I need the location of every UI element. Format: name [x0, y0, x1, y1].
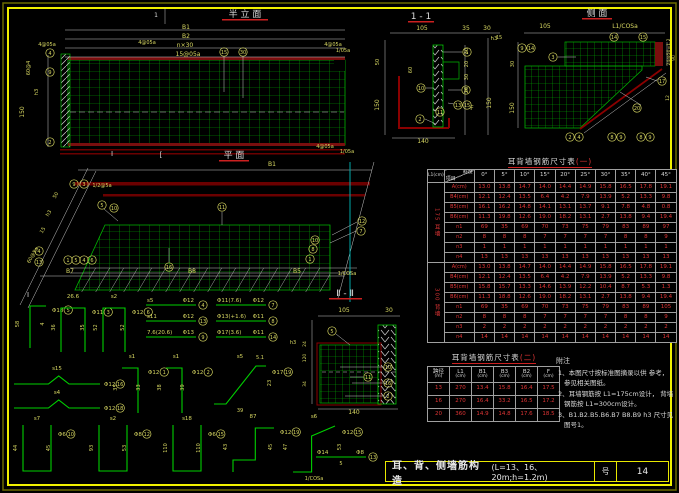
table-cell: B5(cm): [444, 203, 474, 213]
table-cell: 5.2: [616, 273, 636, 283]
rebar-id: 19: [285, 370, 291, 376]
dim-label: L1/COSa: [612, 23, 638, 30]
callout-number: 1: [465, 50, 468, 56]
callout-number: 15: [640, 35, 646, 41]
callout-number: 5: [100, 203, 103, 209]
table-cell: 19.8: [494, 213, 514, 223]
rebar-id: 19: [293, 430, 299, 436]
table-cell: 12.2: [575, 283, 595, 293]
dim-label: 1: [154, 12, 158, 19]
rebar-spec: Φ11: [253, 314, 264, 320]
rebar-spec: Φ12: [192, 370, 203, 376]
rebar-dim: 23: [267, 380, 273, 386]
table-cell: 18.2: [555, 213, 575, 223]
dim-label: 105: [416, 25, 428, 32]
table-cell: 13: [595, 253, 615, 263]
rebar-shape: s11Φ1213: [146, 314, 207, 325]
table-cell: 19.0: [535, 293, 555, 303]
rebar-id: 4: [201, 303, 204, 309]
dim-label: Ⅰ: [27, 291, 29, 299]
sheet-title: 耳、背、侧墙筋构造: [392, 457, 482, 487]
rebar-shape: 7.6(20.6)Φ139: [146, 330, 207, 341]
rebar-name: s15: [52, 366, 62, 372]
table-cell: 8: [494, 313, 514, 323]
rebar-dim: 35: [113, 384, 119, 390]
callout-number: 4: [48, 51, 51, 57]
table-cell: 13.1: [575, 293, 595, 303]
rebar-shape: Φ13(+1.6)Φ118: [216, 314, 277, 325]
table-cell: 8: [636, 313, 656, 323]
table-cell: 13: [656, 253, 676, 263]
table-cell: 14: [595, 333, 615, 343]
rebar-spec: Φ12: [280, 430, 291, 436]
table-cell: 69: [515, 303, 535, 313]
table-cell: 14: [494, 333, 514, 343]
rebar-spec: Φ12: [104, 406, 115, 412]
table-cell: 13: [494, 253, 514, 263]
table-cell: 75: [575, 223, 595, 233]
table-cell: 14: [555, 333, 575, 343]
dim-label: 60: [408, 67, 414, 73]
rebar-dim: 4: [40, 322, 46, 325]
table-cell: 13.0: [474, 183, 494, 193]
table-cell: 13.0: [474, 263, 494, 273]
dim-label: 1/05a: [340, 149, 354, 155]
table-cell: 19.0: [535, 213, 555, 223]
rebar-id: 9: [201, 335, 204, 341]
rebar-name: s2: [111, 294, 117, 300]
rebar-id: 7: [271, 303, 274, 309]
dim-label: 150: [486, 97, 493, 109]
dim-label: 50: [52, 191, 60, 200]
rebar-shape: s2Φ1265252: [93, 294, 152, 352]
rebar-spec: Φ6: [58, 432, 66, 438]
callout-number: 20: [634, 106, 640, 112]
rebar-name: Φ13(+1.6): [217, 314, 246, 320]
table1-title: 耳背墙钢筋尺寸表(一): [427, 156, 673, 167]
table-cell: 15.8: [595, 183, 615, 193]
rebar-name: 7.6(20.6): [147, 330, 172, 336]
table-cell: B4(cm): [444, 273, 474, 283]
dim-label: 60@4: [26, 61, 32, 76]
table-cell: n4: [444, 253, 474, 263]
callout-number: 3: [551, 55, 554, 61]
table-cell: 69: [474, 223, 494, 233]
table-cell: 0.8: [656, 203, 676, 213]
table-cell: 12.6: [515, 293, 535, 303]
table-cell: 70: [535, 303, 555, 313]
dim-label: 30: [464, 74, 470, 80]
callout-number: 5: [330, 329, 333, 335]
table-cell: 13.7: [575, 203, 595, 213]
table-cell: 79: [595, 303, 615, 313]
table-cell: n1: [444, 223, 474, 233]
table-cell: 105: [656, 303, 676, 313]
table-cell: 33.2: [494, 396, 516, 409]
note-item: 1、本图尺寸按标准图摘录以供 参考，参见相关图纸。: [556, 368, 674, 388]
table-cell: 13.8: [616, 213, 636, 223]
table-cell: 1: [555, 243, 575, 253]
table-cell: 11.3: [474, 293, 494, 303]
table1: L1(cm)斜度项目0°5°10°15°20°25°30°35°40°45°17…: [427, 169, 677, 343]
rebar-shape: Φ17(3.6)Φ1114: [216, 330, 277, 341]
table-cell: 2: [575, 323, 595, 333]
table-cell: B2(cm): [516, 367, 538, 383]
table-cell: 83: [616, 303, 636, 313]
callout-number: 16: [166, 265, 172, 271]
table-cell: 13.8: [494, 263, 514, 273]
callout-number: 2: [568, 135, 571, 141]
dim-label: 35: [462, 25, 470, 32]
rebar-dim: 35: [80, 324, 86, 330]
table-cell: B6(cm): [444, 293, 474, 303]
table-cell: 5°: [494, 170, 514, 183]
table-cell: 19.1: [656, 263, 676, 273]
table-cell: 13.8: [494, 183, 514, 193]
sheet-spec: (L=13、16、20m;h=1.2m): [492, 462, 588, 482]
callout-number: 2: [48, 140, 51, 146]
table-cell: 14.7: [515, 263, 535, 273]
rebar-id: 13: [200, 319, 206, 325]
table-cell: 8: [474, 233, 494, 243]
table-cell: 14.7: [515, 183, 535, 193]
dim-label: h3: [491, 36, 498, 42]
dim-label: 1/2@5a: [92, 183, 111, 189]
table-cell: 14.9: [575, 263, 595, 273]
table-cell: 13.3: [515, 283, 535, 293]
rebar-path-J: [30, 306, 46, 348]
dim-label: B2: [182, 33, 190, 40]
callout-number: 16: [385, 381, 391, 387]
table-cell: 19.4: [656, 293, 676, 303]
callout-number: 10: [385, 365, 391, 371]
table-cell: L1(cm): [450, 367, 472, 383]
table-cell: 9: [656, 233, 676, 243]
table-cell: 14.9: [575, 183, 595, 193]
table-cell: 13.3: [636, 193, 656, 203]
table-cell: 7: [595, 313, 615, 323]
dim-label: 4@05a: [316, 144, 334, 150]
rebar-id: 5: [67, 308, 70, 314]
table-cell: 15.7: [494, 283, 514, 293]
table-cell: 1: [616, 243, 636, 253]
table-cell: n1: [444, 303, 474, 313]
table-cell: 8.7: [616, 283, 636, 293]
rebar-name: Φ14: [317, 450, 329, 456]
callout-number: 10: [312, 238, 318, 244]
table-cell: 2: [535, 323, 555, 333]
table-cell: 25°: [575, 170, 595, 183]
table-cell: 16.4: [472, 396, 494, 409]
table-cell: 17.6: [516, 409, 538, 422]
table-cell: 2: [636, 323, 656, 333]
table-cell: 14.0: [535, 183, 555, 193]
table-cell: 12.1: [474, 193, 494, 203]
callout-number: 11: [365, 375, 371, 381]
table-cell: 89: [636, 303, 656, 313]
rebar-id: 15: [355, 430, 361, 436]
rebar-spec: Φ8: [356, 450, 364, 456]
table-cell: 35: [494, 223, 514, 233]
rebar-dim: 39: [237, 408, 243, 414]
dim-label: h3: [45, 209, 53, 218]
dim-label: B5: [293, 268, 301, 275]
table-cell: 13: [555, 253, 575, 263]
rebar-name: s2: [110, 416, 116, 422]
table-cell: 35°: [616, 170, 636, 183]
callout-number: 12: [359, 219, 365, 225]
table-cell: 300 背墙: [428, 263, 445, 343]
rebar-id: 10: [68, 432, 74, 438]
table-cell: 1: [656, 243, 676, 253]
rebar-shape: s6Φ121547531/COSa: [283, 414, 362, 482]
table-cell: 69: [515, 223, 535, 233]
table-cell: 16.4: [516, 383, 538, 396]
table-cell: 6.4: [535, 193, 555, 203]
rebar-shape: s4Φ1218: [14, 390, 124, 412]
dim-label: 15: [39, 226, 47, 235]
table-cell: A(cm): [444, 263, 474, 273]
dim-label: 140: [417, 138, 429, 145]
rebar-id: 8: [271, 319, 274, 325]
table-cell: 12.4: [494, 273, 514, 283]
notes-block: 附注 1、本图尺寸按标准图摘录以供 参考，参见相关图纸。 2、耳墙钢筋按 L1=…: [556, 356, 674, 431]
table-cell: 13: [474, 253, 494, 263]
table-cell: B5(cm): [444, 283, 474, 293]
dim-label: 105: [539, 23, 551, 30]
dim-label: 30: [385, 307, 393, 314]
dim-label: 150: [374, 99, 381, 111]
table-cell: 1: [595, 243, 615, 253]
table2-title-main: 耳背墙钢筋尺寸表: [452, 353, 520, 362]
table-cell: 16.1: [474, 203, 494, 213]
rebar-dim: 33: [136, 384, 142, 390]
dim-label: h3: [290, 340, 296, 346]
half-elevation-title: 半 立 面: [229, 8, 262, 20]
callout-number: 11: [437, 110, 443, 116]
rebar-name: Φ11(7.6): [217, 298, 241, 304]
table-cell: 斜度项目: [444, 170, 474, 183]
callout-number: 9: [648, 135, 651, 141]
callout-number: 2: [386, 394, 389, 400]
table-cell: 18.2: [555, 293, 575, 303]
dim-label: 24: [302, 341, 308, 347]
section-2-2-title: Ⅱ - Ⅱ: [336, 289, 354, 299]
rebar-dim: 53: [122, 445, 128, 451]
table-cell: 16.5: [516, 396, 538, 409]
table-cell: n2: [444, 313, 474, 323]
table-cell: 8: [515, 313, 535, 323]
table-cell: 8: [636, 233, 656, 243]
rebar-dim: 5: [339, 461, 342, 467]
rebar-dim: 53: [337, 444, 343, 450]
table-cell: 10°: [515, 170, 535, 183]
dim-label: 120: [302, 354, 308, 363]
rebar-shape: s1Φ1223839: [157, 354, 212, 413]
dim-label: 150: [509, 102, 516, 114]
table1-container: L1(cm)斜度项目0°5°10°15°20°25°30°35°40°45°17…: [427, 169, 677, 343]
table-cell: 8: [616, 233, 636, 243]
table-cell: 7: [575, 233, 595, 243]
dim-label: B7: [66, 268, 74, 275]
table1-title-suffix: (一): [576, 157, 592, 166]
table-cell: 14.0: [535, 263, 555, 273]
rebar-path-G: [214, 366, 266, 404]
rebar-dim: 1/COSa: [305, 476, 324, 482]
half-elevation-view: [60, 54, 345, 155]
dim-label: 12: [665, 95, 671, 101]
table-cell: 13.1: [575, 213, 595, 223]
table-cell: n3: [444, 243, 474, 253]
table-cell: 9.8: [656, 273, 676, 283]
table-cell: 5.2: [616, 193, 636, 203]
rebar-shape: 87Φ12194345: [223, 414, 300, 472]
rebar-id: 2: [207, 370, 210, 376]
table-cell: 14.9: [472, 409, 494, 422]
rebar-id: 15: [218, 432, 224, 438]
table-cell: 7.9: [575, 193, 595, 203]
rebar-dim: 58: [15, 321, 21, 327]
rebar-shape: s15Φ1216: [14, 366, 124, 388]
rebar-id: 13: [370, 455, 376, 461]
table-cell: 20°: [555, 170, 575, 183]
table-cell: 14: [474, 333, 494, 343]
dim-label: 90: [671, 55, 677, 61]
title-bar-main: 耳、背、侧墙筋构造 (L=13、16、20m;h=1.2m): [386, 462, 594, 481]
rebar-dim: 45: [46, 445, 52, 451]
notes-header: 附注: [556, 356, 674, 367]
table-cell: 7: [575, 313, 595, 323]
table-cell: 8: [494, 233, 514, 243]
dim-label: 50: [375, 59, 381, 65]
table-cell: 270: [450, 396, 472, 409]
table-cell: 17.8: [636, 263, 656, 273]
table-cell: 跨径(m): [428, 367, 450, 383]
table-cell: 14.1: [535, 203, 555, 213]
table-cell: 7: [555, 233, 575, 243]
table-cell: B3(cm): [494, 367, 516, 383]
table-cell: B6(cm): [444, 213, 474, 223]
rebar-name: s1: [173, 354, 179, 360]
plan-title: 平 面: [224, 150, 245, 161]
table-cell: 1.3: [656, 283, 676, 293]
rebar-spec: Φ8: [134, 432, 142, 438]
rebar-name: s7: [34, 416, 41, 422]
callout-number: 14: [611, 35, 617, 41]
table-cell: 89: [636, 223, 656, 233]
table-cell: 8: [515, 233, 535, 243]
drawing-sheet: 半 立 面 平 面 1 - 1 侧 面 Ⅱ - Ⅱ 1B1B2n×3015@05…: [0, 0, 679, 493]
table-cell: L1(cm): [428, 170, 445, 183]
table-cell: 14: [515, 333, 535, 343]
table-cell: 12.1: [474, 273, 494, 283]
callout-number: 5: [74, 258, 77, 264]
table-cell: 19.4: [656, 213, 676, 223]
table-cell: 1: [494, 243, 514, 253]
rebar-spec: Φ12: [183, 314, 194, 320]
table-cell: 14.4: [555, 183, 575, 193]
rebar-dim: 36: [51, 324, 57, 330]
table-cell: 83: [616, 223, 636, 233]
table-cell: 2.7: [595, 213, 615, 223]
table-cell: 1: [575, 243, 595, 253]
table-cell: 75: [575, 303, 595, 313]
note-item: 2、耳墙钢筋按 L1=175cm设计， 背墙钢筋按 L1=300cm设计。: [556, 389, 674, 409]
table-cell: 9: [656, 313, 676, 323]
rebar-dim: 52: [93, 324, 99, 330]
table-cell: 1: [535, 243, 555, 253]
dim-label: [: [160, 151, 163, 159]
callout-number: 6: [90, 258, 93, 264]
rebar-dim: 44: [13, 445, 19, 451]
table-cell: 45°: [656, 170, 676, 183]
table-cell: 0°: [474, 170, 494, 183]
table-cell: 4.8: [636, 203, 656, 213]
table-cell: 15.8: [595, 263, 615, 273]
dim-label: B8: [188, 268, 196, 275]
table-cell: 40°: [636, 170, 656, 183]
table-cell: 10.4: [595, 283, 615, 293]
table-cell: 7: [535, 233, 555, 243]
table-cell: 2: [515, 323, 535, 333]
callout-number: 7: [359, 229, 362, 235]
callout-number: 9: [619, 135, 622, 141]
dim-label: 1/05a: [336, 48, 350, 54]
dim-label: 20: [464, 61, 470, 67]
rebar-name: s4: [54, 390, 61, 396]
rebar-shape: s18Φ615110110: [163, 416, 225, 471]
callout-number: 8: [610, 135, 613, 141]
table-cell: 13: [575, 253, 595, 263]
title-bar: 耳、背、侧墙筋构造 (L=13、16、20m;h=1.2m) 号 14: [385, 461, 669, 482]
table-cell: 16.5: [616, 183, 636, 193]
dim-label: n×30: [177, 42, 194, 49]
table-cell: B4(cm): [444, 193, 474, 203]
rebar-id: 18: [117, 406, 123, 412]
table-cell: 16: [428, 396, 450, 409]
table-cell: 9.8: [656, 193, 676, 203]
rebar-dim: 43: [223, 444, 229, 450]
callout-number: 15: [464, 103, 470, 109]
table-cell: 13.1: [555, 203, 575, 213]
dim-label: B1: [268, 161, 276, 168]
callout-number: 4: [82, 258, 85, 264]
table2-container: 跨径(m)L1(cm)B1(cm)B3(cm)B2(cm)F(cm)132701…: [427, 366, 560, 422]
rebar-dim: 39: [180, 384, 186, 390]
table-cell: 14: [616, 333, 636, 343]
table-cell: 7.8: [616, 203, 636, 213]
table-cell: 13.3: [636, 273, 656, 283]
rebar-dim: 47: [283, 444, 289, 450]
table-cell: 19.1: [656, 183, 676, 193]
sheet-number-label: 号: [594, 462, 616, 481]
table-cell: 12.6: [515, 213, 535, 223]
rebar-id: 3: [107, 310, 110, 316]
table1-title-main: 耳背墙钢筋尺寸表: [508, 157, 576, 166]
table-cell: 1: [515, 243, 535, 253]
callout-number: 4: [37, 249, 40, 255]
callout-number: 13: [455, 103, 461, 109]
rebar-spec: Φ11: [253, 330, 264, 336]
section-1-1-title: 1 - 1: [411, 12, 431, 22]
callout-number: 2: [418, 117, 421, 123]
table-cell: B1(cm): [472, 367, 494, 383]
table-cell: 14: [636, 333, 656, 343]
callout-number: 14: [528, 46, 534, 52]
rebar-spec: Φ12: [132, 310, 143, 316]
rebar-spec: Φ12: [342, 430, 353, 436]
side-view: [525, 42, 666, 133]
